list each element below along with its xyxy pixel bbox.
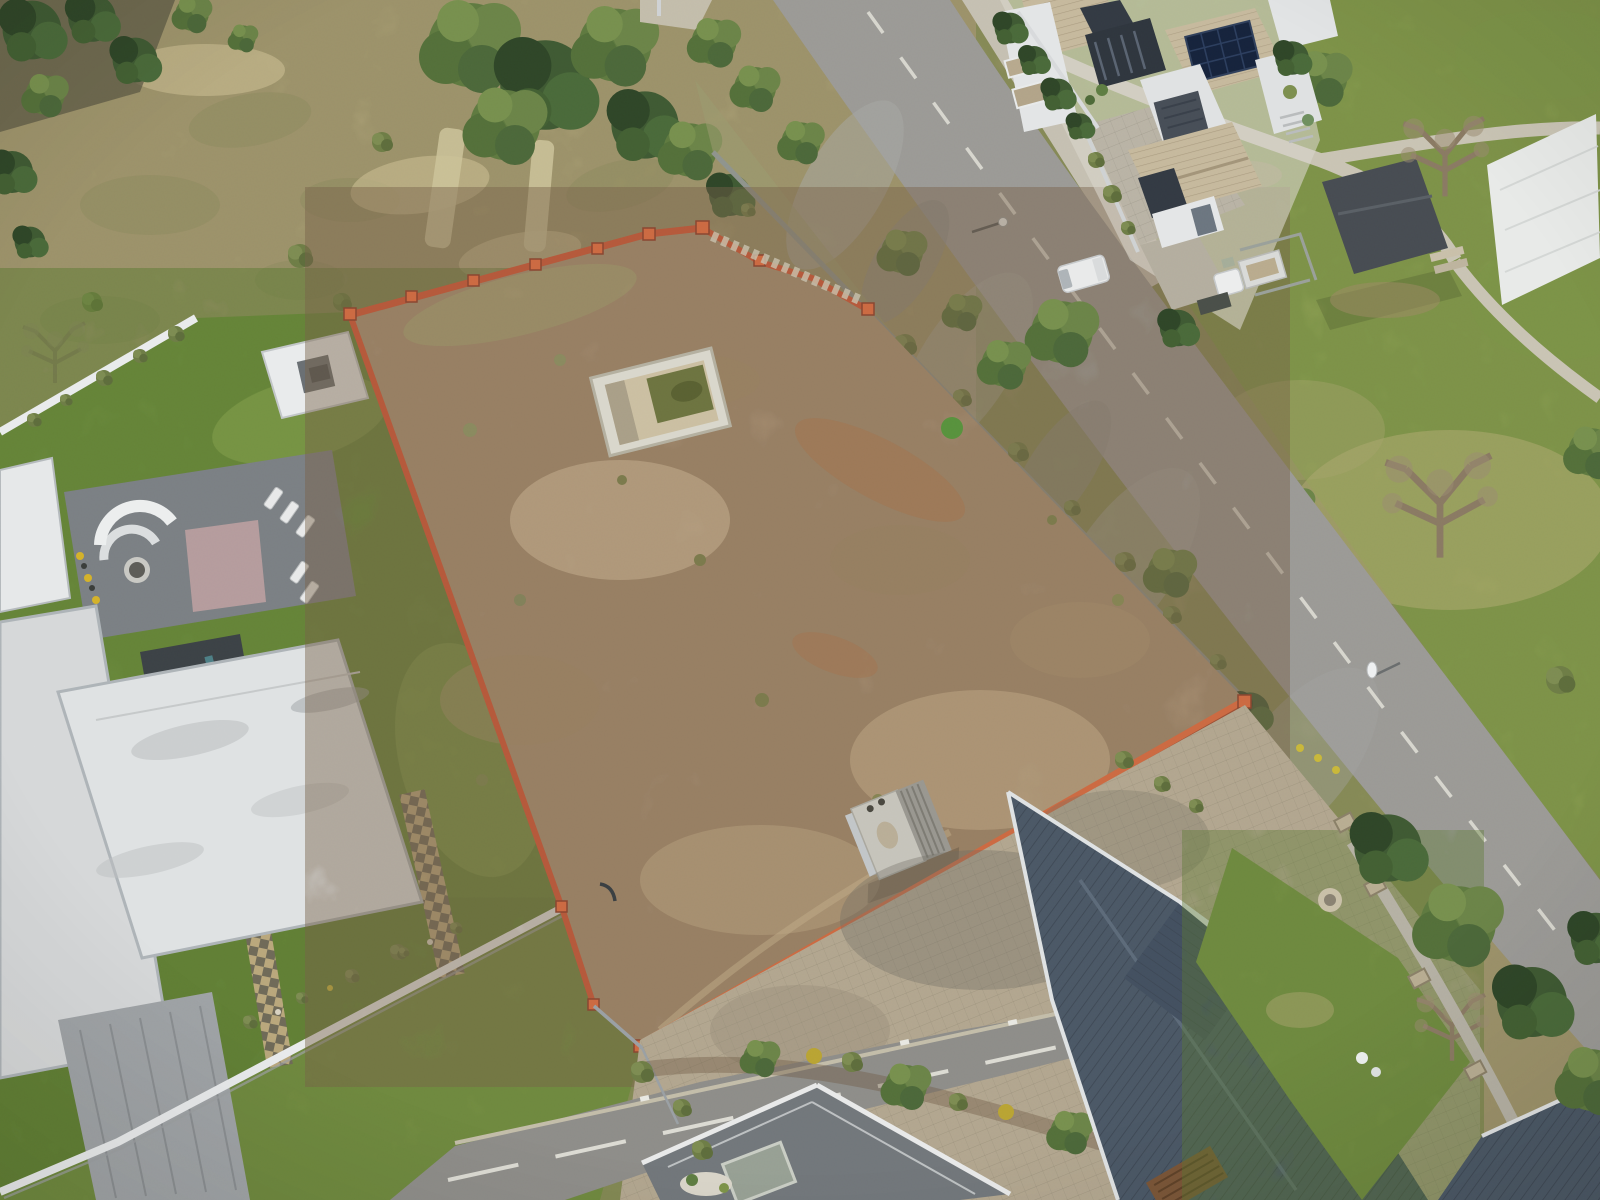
vignette bbox=[0, 0, 1600, 1200]
aerial-photo bbox=[0, 0, 1600, 1200]
aerial-photo-canvas bbox=[0, 0, 1600, 1200]
